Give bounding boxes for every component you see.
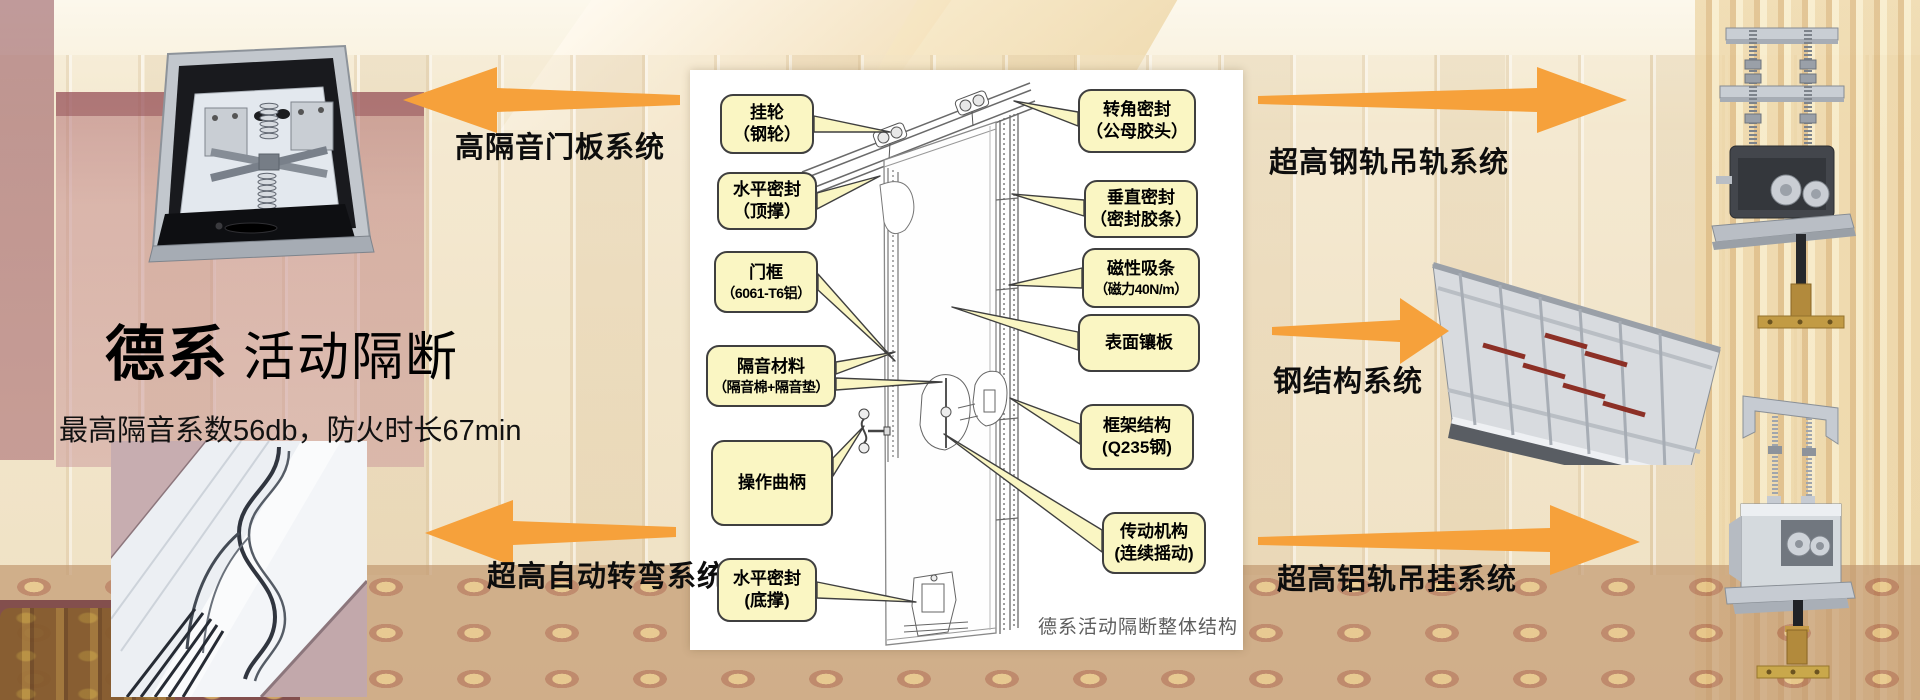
steel-structure-photo bbox=[1425, 235, 1725, 465]
callout-corner-seal: 转角密封 （公母胶头） bbox=[1078, 89, 1196, 153]
diagram-caption: 德系活动隔断整体结构 bbox=[1038, 612, 1238, 639]
label-aluminum-rail-system: 超高铝轨吊挂系统 bbox=[1277, 556, 1517, 598]
label-auto-turning-system: 超高自动转弯系统 bbox=[487, 553, 727, 595]
callout-vertical-seal: 垂直密封 （密封胶条） bbox=[1084, 180, 1198, 238]
label-steel-rail-system: 超高钢轨吊轨系统 bbox=[1269, 139, 1509, 181]
callout-transmission-mechanism: 传动机构 (连续摇动) bbox=[1102, 512, 1206, 574]
curved-track-photo bbox=[111, 441, 367, 697]
callout-horizontal-seal-bottom: 水平密封 (底撑) bbox=[717, 558, 817, 622]
callout-frame-structure: 框架结构 (Q235钢) bbox=[1080, 404, 1194, 470]
callout-hanging-wheel: 挂轮 （钢轮） bbox=[720, 94, 814, 154]
product-name: 活动隔断 bbox=[243, 315, 459, 390]
door-panel-mechanism-photo bbox=[123, 42, 378, 294]
steel-rail-hanger-photo bbox=[1708, 8, 1858, 333]
callout-horizontal-seal-top: 水平密封 （顶撑） bbox=[717, 172, 817, 230]
label-steel-structure-system: 钢结构系统 bbox=[1273, 358, 1423, 400]
product-specs-subtitle: 最高隔音系数56db，防火时长67min bbox=[59, 407, 522, 449]
brand-name: 德系 bbox=[105, 306, 229, 393]
marketing-poster: 德系 活动隔断 最高隔音系数56db，防火时长67min bbox=[0, 0, 1920, 700]
red-door-panel bbox=[0, 0, 54, 460]
callout-door-frame: 门框 （6061-T6铝） bbox=[714, 251, 818, 313]
callout-operating-crank: 操作曲柄 bbox=[711, 440, 833, 526]
callout-surface-panel: 表面镶板 bbox=[1078, 314, 1200, 372]
label-door-panel-system: 高隔音门板系统 bbox=[455, 124, 665, 166]
callout-magnetic-strip: 磁性吸条 （磁力40N/m） bbox=[1082, 248, 1200, 308]
aluminum-rail-hanger-photo bbox=[1723, 386, 1858, 686]
brand-title-block: 德系 活动隔断 最高隔音系数56db，防火时长67min bbox=[59, 306, 522, 449]
callout-soundproof-material: 隔音材料 （隔音棉+隔音垫） bbox=[706, 345, 836, 407]
page-title: 德系 活动隔断 bbox=[105, 306, 522, 393]
